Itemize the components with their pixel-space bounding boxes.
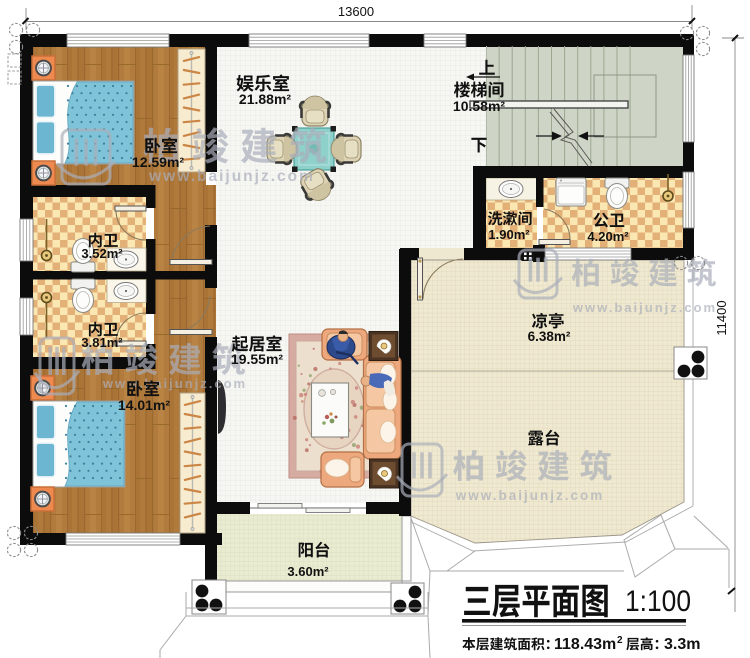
svg-text:3.3m: 3.3m [664, 636, 700, 653]
svg-text:2: 2 [617, 635, 623, 646]
svg-text:19.55m²: 19.55m² [231, 351, 283, 367]
svg-text:12.59m²: 12.59m² [132, 154, 184, 170]
svg-text:www.baijunjz.com: www.baijunjz.com [148, 168, 315, 185]
svg-text:3.52m²: 3.52m² [81, 246, 123, 261]
svg-text:14.01m²: 14.01m² [118, 397, 170, 413]
svg-text:www.baijunjz.com: www.baijunjz.com [572, 300, 717, 315]
svg-text:21.88m²: 21.88m² [239, 91, 291, 107]
svg-text:13600: 13600 [338, 4, 374, 19]
svg-text:11400: 11400 [714, 300, 729, 335]
svg-text:1.90m²: 1.90m² [488, 227, 530, 242]
svg-text:4.20m²: 4.20m² [587, 229, 629, 244]
svg-text:118.43m: 118.43m [554, 636, 616, 653]
svg-text:www.baijunjz.com: www.baijunjz.com [455, 488, 605, 503]
svg-text:10.58m²: 10.58m² [453, 98, 505, 114]
svg-text:www.baijunjz.com: www.baijunjz.com [102, 376, 247, 391]
svg-text:1:100: 1:100 [625, 583, 691, 617]
svg-text:3.60m²: 3.60m² [287, 564, 329, 579]
svg-text:3.81m²: 3.81m² [81, 335, 123, 350]
svg-text:6.38m²: 6.38m² [528, 329, 571, 344]
